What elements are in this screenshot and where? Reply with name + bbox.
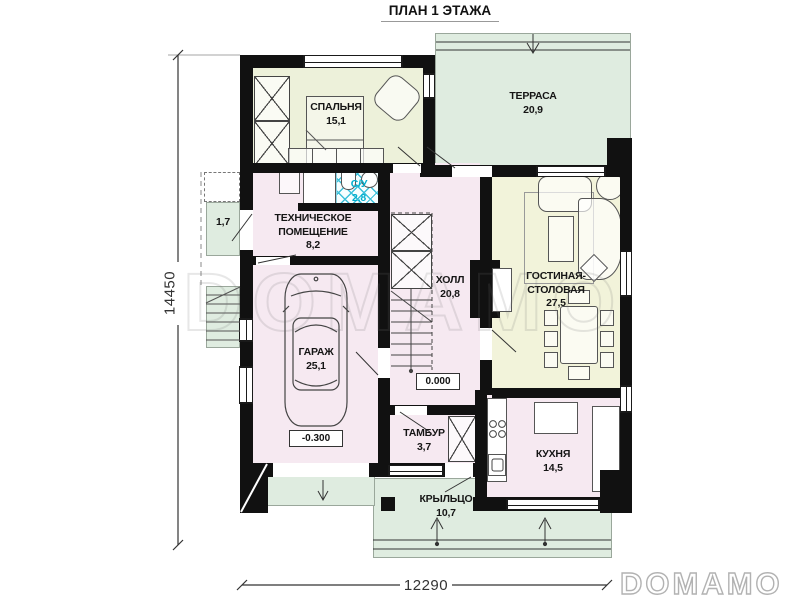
floor-plan: ПЛАН 1 ЭТАЖА — [0, 0, 800, 600]
wall-left — [240, 55, 253, 475]
shower — [303, 169, 336, 206]
washing-machine — [279, 171, 300, 194]
overhang-dashed-rect — [204, 172, 240, 202]
door-gap-bedroom — [393, 164, 421, 173]
wall-bath-bottom — [298, 203, 390, 211]
bedroom-wardrobe-lower — [254, 121, 290, 166]
window-kitchen-bottom — [506, 499, 600, 510]
stairs-storage-lower — [391, 251, 432, 289]
bedroom-wardrobe-upper — [254, 76, 290, 121]
wall-right — [620, 165, 632, 513]
stairs-storage-upper — [391, 214, 432, 251]
door-gap-hall-garage — [378, 348, 390, 378]
wall-hall-living — [480, 165, 492, 395]
wall-living-kitchen — [492, 388, 620, 398]
door-gap-tech-garage — [256, 257, 290, 265]
wall-bath-right — [383, 163, 390, 208]
dining-chair — [600, 352, 614, 368]
label-bathroom: С/У 2,8 — [351, 178, 367, 205]
dining-chair — [544, 310, 558, 326]
wall-kitchen-left — [475, 390, 487, 500]
label-technical: ТЕХНИЧЕСКОЕ ПОМЕЩЕНИЕ 8,2 — [275, 212, 352, 253]
door-gap-vestibule-porch — [445, 463, 473, 477]
label-hall: ХОЛЛ 20,8 — [436, 274, 465, 301]
window-garage-left-2 — [239, 366, 253, 404]
door-gap-hall-living — [480, 328, 492, 360]
tv-unit — [492, 268, 512, 312]
wall-hall-garage — [378, 170, 390, 477]
garage-door-gap — [273, 463, 369, 477]
dining-chair — [568, 366, 590, 380]
vestibule-wardrobe — [448, 416, 476, 462]
dining-chair — [544, 352, 558, 368]
door-gap-hall-vestibule — [395, 406, 427, 415]
window-bedroom-top — [303, 55, 403, 68]
dining-chair — [544, 331, 558, 347]
dim-left-total: 14450 — [162, 271, 179, 315]
window-vestibule-bottom — [388, 465, 444, 476]
dim-bottom-total: 12290 — [404, 577, 448, 594]
label-vestibule: ТАМБУР 3,7 — [403, 427, 445, 454]
window-living-right — [620, 250, 632, 297]
door-gap-side-entry — [240, 210, 253, 250]
label-kitchen: КУХНЯ 14,5 — [536, 448, 570, 475]
elevation-ground: 0.000 — [416, 373, 460, 390]
label-side-entry: 1,7 — [216, 216, 230, 230]
elevation-garage: -0.300 — [289, 430, 343, 447]
porch-column — [381, 497, 395, 511]
window-living-terrace — [536, 166, 606, 177]
window-garage-left-1 — [239, 318, 253, 342]
coffee-table — [548, 216, 574, 262]
brand-logo: DOMAMO — [620, 566, 783, 600]
garage-apron-floor — [266, 476, 375, 506]
plan-title-wrap: ПЛАН 1 ЭТАЖА — [300, 2, 580, 22]
dining-chair — [600, 310, 614, 326]
dining-chair — [600, 331, 614, 347]
window-bedroom-terrace — [423, 73, 435, 99]
kitchen-sink — [488, 454, 506, 476]
door-gap-terrace — [452, 166, 492, 177]
label-porch: КРЫЛЬЦО 10,7 — [419, 493, 472, 520]
label-garage: ГАРАЖ 25,1 — [298, 346, 333, 373]
wall-corner-se — [600, 470, 632, 513]
label-terrace: ТЕРРАСА 20,9 — [509, 90, 556, 117]
label-living: ГОСТИНАЯ- СТОЛОВАЯ 27,5 — [526, 270, 586, 311]
wall-terrace-corner — [607, 138, 632, 168]
plan-title: ПЛАН 1 ЭТАЖА — [381, 3, 499, 22]
kitchen-island — [534, 402, 578, 434]
label-bedroom: СПАЛЬНЯ 15,1 — [310, 101, 362, 128]
dining-table — [560, 306, 598, 364]
exterior-stairs-floor — [206, 286, 240, 348]
window-kitchen-right — [620, 385, 632, 413]
